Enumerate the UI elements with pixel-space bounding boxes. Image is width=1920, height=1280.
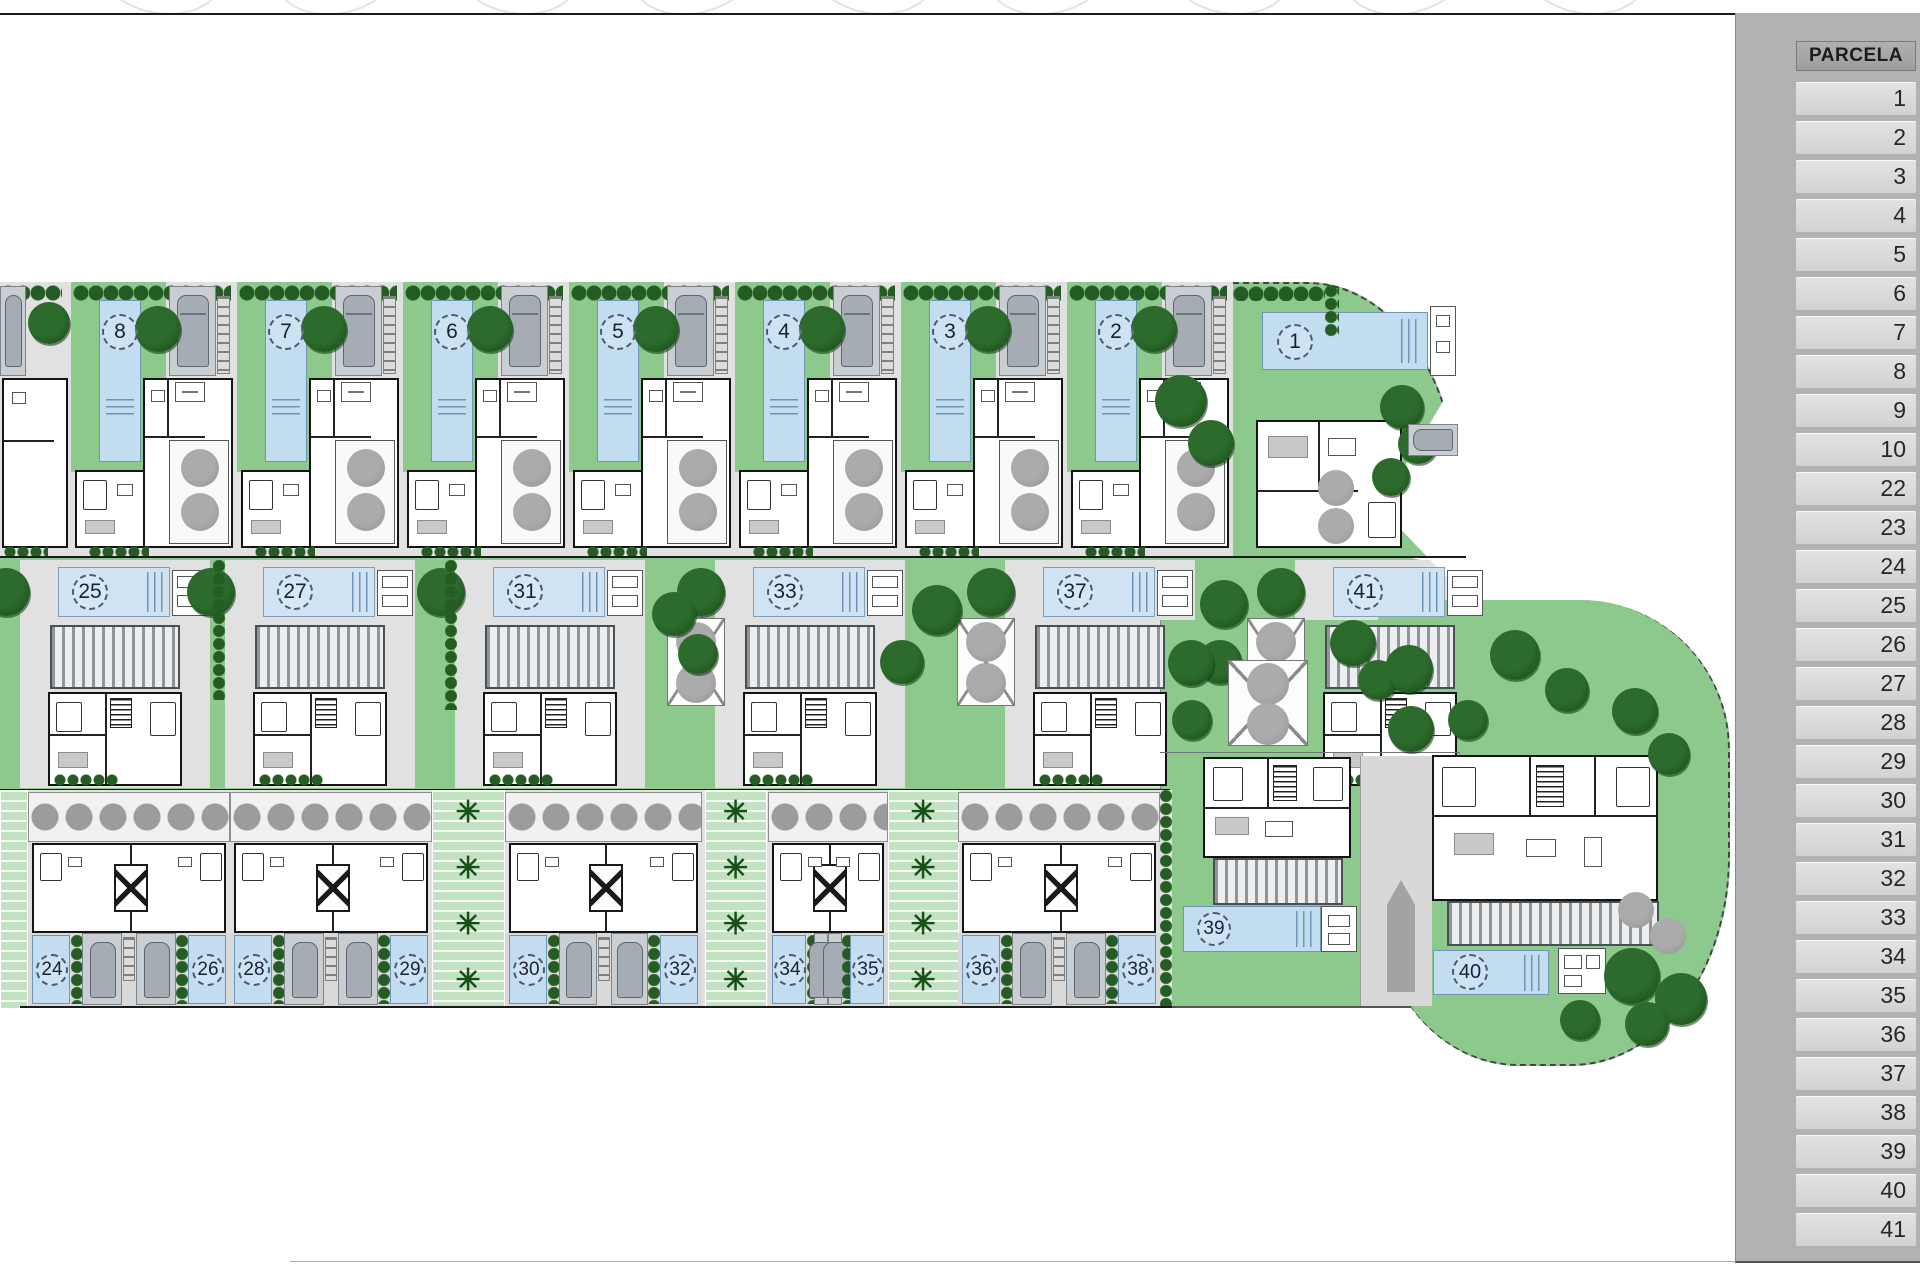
tree-icon (1257, 568, 1305, 616)
shrub-row-icon (54, 774, 118, 786)
gray-tree-icon (347, 493, 385, 531)
kitchen-box (872, 576, 898, 588)
bed-icon (780, 853, 802, 881)
lot-divider (1160, 752, 1460, 753)
duplex-base-band: 2829 (230, 933, 432, 1006)
roof-trellis (958, 792, 1160, 842)
roof-trellis (230, 792, 432, 842)
courtyard (833, 440, 893, 544)
bed-icon (1616, 767, 1650, 807)
bed-icon (747, 480, 771, 510)
kitchen-box (1564, 975, 1582, 987)
pool-deck (1321, 906, 1357, 952)
garage (136, 933, 176, 1005)
hedge-column-icon (176, 935, 188, 1004)
gray-tree-icon (1247, 663, 1289, 705)
kitchen-box (1586, 955, 1600, 969)
gray-tree-icon (1318, 508, 1354, 544)
bed-icon (1331, 702, 1357, 732)
tree-icon (1648, 733, 1690, 775)
car-windshield (180, 313, 206, 315)
tree-icon (967, 568, 1015, 616)
pool-steps-icon (106, 399, 134, 419)
kitchen-box (1452, 576, 1478, 588)
pool-steps-icon (936, 399, 964, 419)
stair-cross-icon (589, 864, 623, 912)
car-windshield (1176, 313, 1202, 315)
bed-icon (402, 853, 424, 881)
furniture-icon (649, 390, 663, 402)
floor-plan (905, 470, 975, 548)
gray-tree-icon (1247, 703, 1289, 745)
wall-line (477, 436, 537, 438)
bed-icon (1135, 702, 1161, 736)
bed-icon (913, 480, 937, 510)
furniture-icon (615, 484, 631, 496)
pool-35: 35 (850, 935, 884, 1004)
car-icon (5, 295, 22, 367)
parcel-number-38: 38 (1122, 954, 1154, 986)
stairs-icon (549, 296, 562, 374)
parcela-row-29: 29 (1796, 745, 1916, 778)
parcela-row-10: 10 (1796, 433, 1916, 466)
table-line (846, 391, 862, 393)
car-icon (509, 295, 541, 367)
gray-tree-icon (966, 663, 1006, 703)
parcel-number-37: 37 (1057, 574, 1093, 610)
pool-steps-icon (147, 572, 165, 612)
sofa-icon (1454, 833, 1494, 855)
furniture-icon (545, 857, 559, 867)
parcel-number-33: 33 (767, 574, 803, 610)
furniture-icon (449, 484, 465, 496)
kitchen-box (1452, 595, 1478, 607)
tree-icon (633, 306, 679, 352)
gray-tree-icon (513, 493, 551, 531)
dining-table-icon (1265, 821, 1293, 837)
car-icon (1413, 429, 1453, 451)
outdoor-kitchen (1447, 570, 1483, 616)
garage (82, 933, 122, 1005)
gray-tree-icon (679, 493, 717, 531)
parcela-row-34: 34 (1796, 940, 1916, 973)
tree-icon (467, 306, 513, 352)
sofa-icon (1043, 752, 1073, 768)
pool-steps-icon (1524, 955, 1542, 991)
shrub-row-icon (749, 774, 813, 786)
floor-plan (2, 378, 68, 548)
bed-icon (1130, 853, 1152, 881)
pool-steps-icon (272, 399, 300, 419)
tree-icon (965, 306, 1011, 352)
parcela-row-24: 24 (1796, 550, 1916, 583)
parcel-number-24: 24 (36, 954, 68, 986)
pool-steps-icon (1132, 572, 1150, 612)
stairs-icon (1053, 937, 1065, 981)
pergola-icon (745, 625, 875, 689)
parcela-table-panel: PARCELA 12345678910222324252627282930313… (1735, 13, 1920, 1263)
floor-plan (573, 470, 643, 548)
parcela-row-38: 38 (1796, 1096, 1916, 1129)
parcel-number-8: 8 (102, 314, 138, 350)
dining-table-icon (839, 382, 869, 402)
wall-line (50, 734, 105, 736)
stairs-icon (1047, 296, 1060, 374)
palm-tree-icon: ✳ (456, 910, 484, 938)
stair-cross-icon (114, 864, 148, 912)
pool-steps-icon (604, 399, 632, 419)
tree-icon (1330, 620, 1376, 666)
parcela-row-5: 5 (1796, 238, 1916, 271)
furniture-icon (151, 390, 165, 402)
furniture-icon (981, 390, 995, 402)
car-icon (144, 942, 170, 998)
parcela-row-28: 28 (1796, 706, 1916, 739)
gray-tree-icon (845, 449, 883, 487)
stair-cross-icon (1044, 864, 1078, 912)
pool-patio (1430, 306, 1456, 376)
parcel-number-26: 26 (192, 954, 224, 986)
garage (611, 933, 649, 1005)
pool-steps-icon (1401, 319, 1421, 363)
parcel-number-30: 30 (513, 954, 545, 986)
wall-line (831, 380, 833, 438)
tree-icon (135, 306, 181, 352)
furniture-icon (12, 392, 26, 404)
gray-tree-icon (181, 449, 219, 487)
stair-icon (1095, 698, 1117, 728)
stairs-icon (598, 937, 610, 981)
car-windshield (678, 313, 704, 315)
tree-icon (1200, 580, 1248, 628)
wall-line (105, 694, 107, 784)
outdoor-kitchen (1558, 948, 1606, 994)
stair-icon (805, 698, 827, 728)
wall-line (255, 734, 310, 736)
courtyard (957, 618, 1015, 706)
table-line (348, 391, 364, 393)
roof-trellis (28, 792, 230, 842)
tree-icon (1448, 700, 1488, 740)
pool-36: 36 (962, 935, 1000, 1004)
bed-icon (1442, 767, 1476, 807)
pool-24: 24 (32, 935, 70, 1004)
bed-icon (858, 853, 880, 881)
duplex-floor-plan (234, 843, 428, 933)
shrub-row-icon (489, 774, 553, 786)
duplex-base-band: 2426 (28, 933, 230, 1006)
parcela-row-39: 39 (1796, 1135, 1916, 1168)
wall-line (643, 436, 703, 438)
car-icon (1173, 295, 1205, 367)
car-windshield (346, 313, 372, 315)
outdoor-kitchen (1157, 570, 1193, 616)
roof-trellis (505, 792, 702, 842)
parcela-row-32: 32 (1796, 862, 1916, 895)
furniture-icon (947, 484, 963, 496)
courtyard (169, 440, 229, 544)
floor-plan (641, 378, 731, 548)
patio-box (1436, 315, 1450, 327)
bed-icon (1041, 702, 1067, 732)
car-windshield (844, 313, 870, 315)
kitchen-box (382, 576, 408, 588)
bed-icon (249, 480, 273, 510)
furniture-icon (283, 484, 299, 496)
car-windshield (512, 313, 538, 315)
floor-plan (475, 378, 565, 548)
walkway: ✳✳✳✳ (888, 790, 959, 1008)
wall-line (745, 734, 800, 736)
tree-icon (1131, 306, 1177, 352)
car-icon (346, 942, 372, 998)
bed-icon (970, 853, 992, 881)
bed-icon (1313, 767, 1343, 801)
parcel-number-31: 31 (507, 574, 543, 610)
parcela-row-6: 6 (1796, 277, 1916, 310)
duplex-floor-plan (32, 843, 226, 933)
pool-32: 32 (660, 935, 698, 1004)
hedge-column-icon (1106, 935, 1118, 1004)
wall-line (1090, 694, 1092, 784)
duplex-floor-plan (962, 843, 1156, 933)
pool-40 (1433, 950, 1549, 995)
outdoor-kitchen (867, 570, 903, 616)
sofa-icon (493, 752, 523, 768)
bed-icon (56, 702, 82, 732)
sofa-icon (251, 520, 281, 534)
wall-line (1205, 807, 1349, 809)
floor-plan (807, 378, 897, 548)
palm-tree-icon: ✳ (723, 966, 751, 994)
garage (1012, 933, 1052, 1005)
tree-icon (912, 585, 962, 635)
walkway (0, 790, 28, 1008)
tree-icon (678, 634, 718, 674)
car-icon (343, 295, 375, 367)
gray-tree-icon (1256, 622, 1296, 662)
tree-icon (1385, 645, 1433, 693)
palm-tree-icon: ✳ (456, 854, 484, 882)
wall-line (1035, 734, 1090, 736)
parcela-row-1: 1 (1796, 82, 1916, 115)
floor-plan (407, 470, 477, 548)
parcel-number-27: 27 (277, 574, 313, 610)
wall-line (333, 380, 335, 438)
palm-tree-icon: ✳ (456, 798, 484, 826)
bed-icon (751, 702, 777, 732)
stairs-icon (715, 296, 728, 374)
sofa-icon (1215, 817, 1249, 835)
wall-line (665, 380, 667, 438)
palm-tree-icon: ✳ (723, 854, 751, 882)
gray-tree-icon (679, 449, 717, 487)
wall-line (997, 380, 999, 438)
bed-icon (1368, 502, 1396, 538)
parcela-row-7: 7 (1796, 316, 1916, 349)
table-line (1012, 391, 1028, 393)
gray-tree-icon (513, 449, 551, 487)
hedge-column-icon (445, 560, 457, 710)
car-icon (177, 295, 209, 367)
gray-tree-icon (1618, 892, 1654, 928)
courtyard (501, 440, 561, 544)
duplex-floor-plan (772, 843, 884, 933)
floor-plan-39 (1203, 757, 1351, 858)
courtyard (335, 440, 395, 544)
furniture-icon (808, 857, 822, 867)
stair-icon (110, 698, 132, 728)
pool-26: 26 (188, 935, 226, 1004)
outdoor-kitchen (377, 570, 413, 616)
deck-box (1328, 915, 1350, 927)
gray-tree-icon (966, 622, 1006, 662)
gray-tree-icon (1318, 470, 1354, 506)
car-icon (617, 942, 643, 998)
pool-34: 34 (772, 935, 806, 1004)
floor-plan (973, 378, 1063, 548)
walkway: ✳✳✳✳ (705, 790, 767, 1008)
bed-icon (517, 853, 539, 881)
courtyard (999, 440, 1059, 544)
wall-line (1594, 757, 1596, 815)
bed-icon (672, 853, 694, 881)
sofa-icon (1268, 436, 1308, 458)
furniture-icon (781, 484, 797, 496)
parcel-number-25: 25 (72, 574, 108, 610)
dining-table-icon (1005, 382, 1035, 402)
walkway: ✳✳✳✳ (432, 790, 505, 1008)
tree-icon (417, 568, 465, 616)
tree-icon (652, 592, 696, 636)
sofa-icon (263, 752, 293, 768)
palm-tree-icon: ✳ (911, 910, 939, 938)
table-line (514, 391, 530, 393)
deck-box (1328, 933, 1350, 945)
bed-icon (200, 853, 222, 881)
furniture-icon (650, 857, 664, 867)
bed-icon (845, 702, 871, 736)
car-icon (1007, 295, 1039, 367)
stairs-icon (123, 937, 135, 981)
tree-icon (1380, 385, 1424, 429)
wall-line (1267, 759, 1269, 807)
sofa-icon (583, 520, 613, 534)
wall-line (1325, 734, 1380, 736)
duplex-base-band: 3638 (958, 933, 1160, 1006)
pergola-icon (1035, 625, 1165, 689)
car-icon (1020, 942, 1046, 998)
tree-icon (1188, 420, 1234, 466)
parcel-number-36: 36 (966, 954, 998, 986)
gray-tree-icon (1011, 493, 1049, 531)
tree-icon (1168, 640, 1214, 686)
roof-trellis (768, 792, 888, 842)
parcela-row-23: 23 (1796, 511, 1916, 544)
pool-steps-icon (1422, 572, 1440, 612)
furniture-icon (317, 390, 331, 402)
floor-plan (253, 692, 387, 786)
furniture-icon (998, 857, 1012, 867)
wall-line (800, 694, 802, 784)
pool-steps-icon (438, 399, 466, 419)
dining-table-icon (1328, 438, 1356, 456)
dining-table-icon (673, 382, 703, 402)
kitchen-box (612, 576, 638, 588)
tree-icon (1372, 458, 1410, 496)
stair-icon (1536, 765, 1564, 807)
tree-icon (1388, 706, 1434, 752)
wall-line (167, 380, 169, 438)
site-plan-sheet: 87654322527313337411✳✳✳✳✳✳✳✳✳✳✳✳24262829… (0, 0, 1920, 1280)
hedge-row-icon (1233, 285, 1325, 301)
sheet-bottom-border (290, 1261, 1920, 1262)
parcel-number-29: 29 (394, 954, 426, 986)
parcela-row-26: 26 (1796, 628, 1916, 661)
garage (828, 933, 842, 1005)
parcela-row-9: 9 (1796, 394, 1916, 427)
parcel-number-1: 1 (1277, 324, 1313, 360)
tree-icon (1490, 630, 1540, 680)
floor-plan (309, 378, 399, 548)
furniture-icon (1584, 837, 1602, 867)
wall-line (485, 734, 540, 736)
wall-line (4, 440, 54, 442)
kitchen-box (1162, 576, 1188, 588)
parcela-row-31: 31 (1796, 823, 1916, 856)
parcel-number-6: 6 (434, 314, 470, 350)
courtyard (1228, 660, 1308, 746)
parcel-number-34: 34 (774, 954, 806, 986)
car-windshield (1010, 313, 1036, 315)
furniture-icon (380, 857, 394, 867)
pergola-icon (1213, 858, 1343, 905)
patio-box (1436, 341, 1450, 353)
parcela-row-30: 30 (1796, 784, 1916, 817)
bed-icon (261, 702, 287, 732)
bed-icon (491, 702, 517, 732)
bed-icon (581, 480, 605, 510)
kitchen-box (1564, 955, 1582, 969)
kitchen-box (872, 595, 898, 607)
hedge-column-icon (378, 935, 390, 1004)
parcela-row-2: 2 (1796, 121, 1916, 154)
stair-cross-icon (813, 864, 847, 912)
hedge-column-icon (1160, 790, 1172, 1006)
gray-tree-icon (1650, 918, 1686, 954)
floor-plan (743, 692, 877, 786)
furniture-icon (117, 484, 133, 496)
parcel-number-4: 4 (766, 314, 802, 350)
row-divider (0, 556, 1466, 558)
parcela-row-40: 40 (1796, 1174, 1916, 1207)
stair-icon (1273, 765, 1297, 801)
parcela-row-25: 25 (1796, 589, 1916, 622)
carport (0, 286, 26, 376)
wall-line (1529, 757, 1531, 815)
parcel-number-7: 7 (268, 314, 304, 350)
pool-steps-icon (1296, 911, 1314, 947)
stairs-icon (881, 296, 894, 374)
palm-tree-icon: ✳ (456, 966, 484, 994)
garage (559, 933, 597, 1005)
bed-icon (150, 702, 176, 736)
parcela-row-22: 22 (1796, 472, 1916, 505)
floor-plan (739, 470, 809, 548)
furniture-icon (483, 390, 497, 402)
duplex-floor-plan (509, 843, 698, 933)
furniture-icon (1108, 857, 1122, 867)
